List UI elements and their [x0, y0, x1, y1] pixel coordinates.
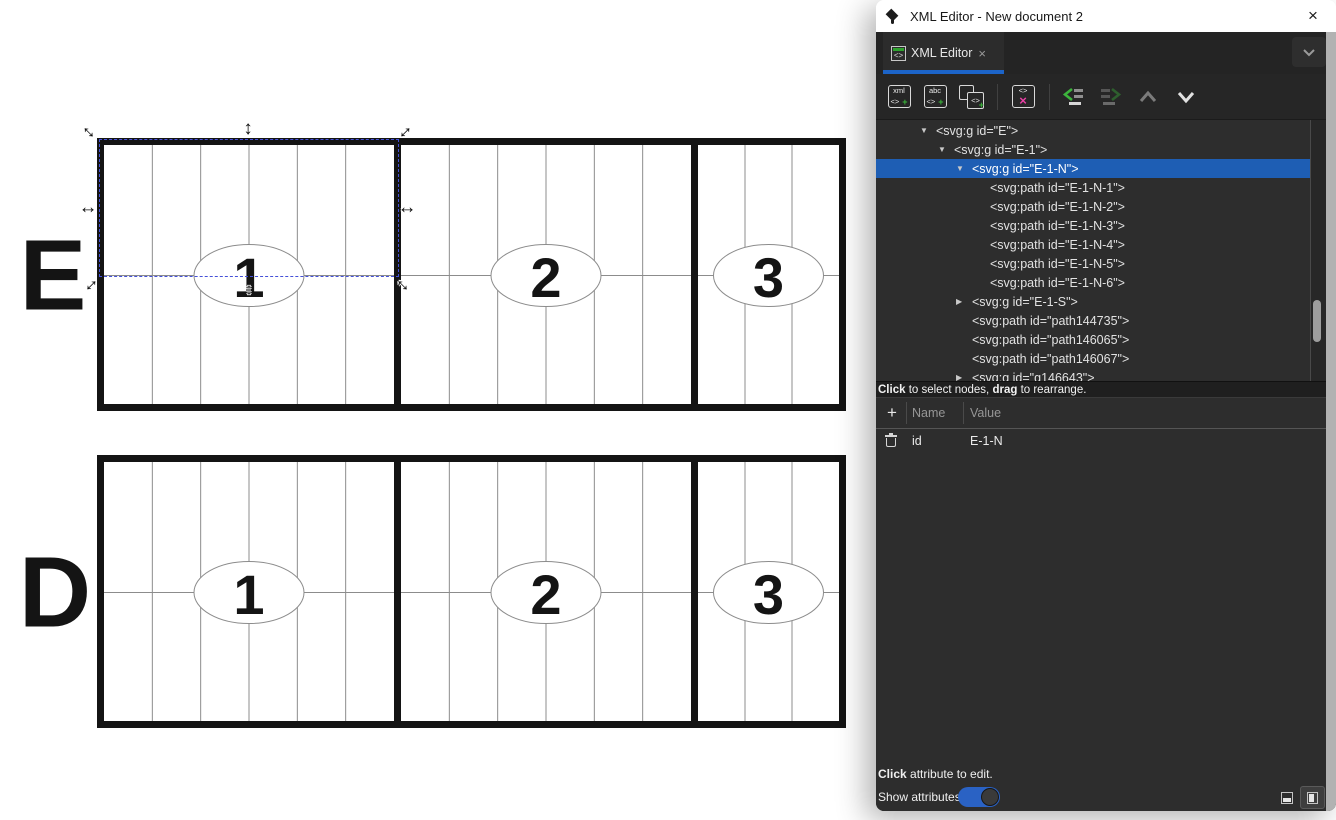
section-number[interactable]: 2 — [530, 563, 561, 626]
attributes-header: + Name Value — [876, 397, 1326, 429]
inkscape-logo-icon — [884, 8, 900, 24]
attribute-hint: Click attribute to edit. — [878, 767, 993, 781]
xml-editor-dialog: XML Editor - New document 2 × <> XML Edi… — [876, 0, 1336, 811]
icon-text: abc — [927, 87, 944, 95]
tree-node-label: <svg:path id="E-1-N-3"> — [990, 219, 1125, 233]
tree-node-label: <svg:g id="g146643"> — [972, 371, 1095, 382]
tree-node[interactable]: ▼<svg:g id="E-1"> — [876, 140, 1310, 159]
selection-handle-n[interactable]: ↕ — [237, 118, 259, 140]
value-column-header: Value — [970, 398, 1001, 428]
tree-node[interactable]: <svg:path id="E-1-N-6"> — [876, 273, 1310, 292]
attribute-row[interactable]: id E-1-N — [876, 429, 1326, 453]
expander-icon[interactable]: ▼ — [938, 145, 954, 154]
horizontal-split-icon — [1281, 792, 1293, 804]
tab-xml-editor[interactable]: <> XML Editor × — [883, 32, 1004, 74]
plus-glyph: + — [902, 99, 907, 106]
delete-node-button[interactable]: <> × — [1008, 80, 1038, 114]
tree-node-label: <svg:path id="path144735"> — [972, 314, 1129, 328]
chevron-down-icon — [1302, 48, 1316, 57]
tree-node[interactable]: ▼<svg:g id="E"> — [876, 121, 1310, 140]
layout-horizontal-button[interactable] — [1275, 787, 1299, 809]
attribute-value[interactable]: E-1-N — [970, 429, 1003, 453]
show-attributes-label: Show attributes — [878, 787, 961, 807]
tab-menu-button[interactable] — [1292, 37, 1326, 67]
row-label: D — [19, 537, 91, 649]
icon-text: xml — [891, 87, 908, 95]
tree-node-label: <svg:path id="E-1-N-2"> — [990, 200, 1125, 214]
tree-node[interactable]: <svg:path id="E-1-N-1"> — [876, 178, 1310, 197]
toggle-knob — [981, 788, 999, 806]
unindent-node-button[interactable] — [1059, 80, 1089, 114]
duplicate-node-button[interactable]: <>+ — [956, 80, 986, 114]
new-element-node-icon: xml <>+ — [888, 85, 911, 108]
window-title: XML Editor - New document 2 — [910, 9, 1083, 24]
chevron-down-icon — [1175, 88, 1197, 106]
delete-node-icon: <> × — [1012, 85, 1035, 108]
tree-node[interactable]: <svg:path id="E-1-N-5"> — [876, 254, 1310, 273]
row-label: E — [20, 220, 87, 332]
tree-node-label: <svg:path id="E-1-N-4"> — [990, 238, 1125, 252]
tree-node-label: <svg:path id="path146067"> — [972, 352, 1129, 366]
tree-scrollbar[interactable] — [1311, 120, 1326, 381]
plus-glyph: + — [979, 100, 984, 110]
xml-tag-icon: <> — [891, 46, 906, 61]
tree-node-label: <svg:path id="E-1-N-1"> — [990, 181, 1125, 195]
tree-node[interactable]: ▶<svg:g id="g146643"> — [876, 368, 1310, 381]
indent-node-button[interactable] — [1095, 80, 1125, 114]
plus-glyph: + — [938, 99, 943, 106]
chevron-up-icon — [1137, 88, 1159, 106]
tree-node[interactable]: <svg:path id="path144735"> — [876, 311, 1310, 330]
icon-text: <> — [891, 98, 900, 106]
indent-node-icon — [1097, 87, 1123, 107]
status-text: to select nodes, — [906, 384, 993, 396]
expander-icon[interactable]: ▼ — [956, 164, 972, 173]
status-text: Click — [878, 384, 906, 396]
tree-node[interactable]: <svg:path id="path146065"> — [876, 330, 1310, 349]
status-text: drag — [992, 384, 1017, 396]
toolbar-separator — [1049, 84, 1050, 110]
tree-node[interactable]: <svg:path id="E-1-N-3"> — [876, 216, 1310, 235]
toolbar-separator — [997, 84, 998, 110]
expander-icon[interactable]: ▶ — [956, 297, 972, 306]
delete-attribute-icon[interactable] — [885, 434, 897, 448]
drawing-svg[interactable]: E123D123 — [0, 0, 876, 820]
xml-node-tree: ▼<svg:g id="E">▼<svg:g id="E-1">▼<svg:g … — [876, 119, 1326, 381]
tree-node-label: <svg:g id="E-1-S"> — [972, 295, 1078, 309]
tree-node[interactable]: <svg:path id="E-1-N-4"> — [876, 235, 1310, 254]
dialog-client-area: <> XML Editor × xml <>+ abc — [876, 32, 1336, 811]
icon-front-square: <>+ — [967, 92, 984, 109]
layout-vertical-button[interactable] — [1300, 786, 1325, 809]
expander-icon[interactable]: ▼ — [920, 126, 936, 135]
expander-icon[interactable]: ▶ — [956, 373, 972, 381]
new-text-node-icon: abc <>+ — [924, 85, 947, 108]
status-text: to rearrange. — [1017, 384, 1086, 396]
new-text-node-button[interactable]: abc <>+ — [920, 80, 950, 114]
selection-handle-s[interactable]: ↕ — [238, 278, 260, 300]
hint-text: Click — [878, 767, 907, 781]
tree-node-label: <svg:g id="E"> — [936, 124, 1018, 138]
attribute-name[interactable]: id — [912, 429, 922, 453]
trash-body — [886, 438, 896, 447]
selection-handle-w[interactable]: ↔ — [77, 197, 99, 219]
icon-text: <> — [927, 98, 936, 106]
duplicate-node-icon: <>+ — [958, 84, 984, 109]
section-number[interactable]: 2 — [530, 246, 561, 309]
tree-node[interactable]: <svg:path id="path146067"> — [876, 349, 1310, 368]
tab-label: XML Editor — [911, 46, 972, 60]
move-node-down-button[interactable] — [1171, 80, 1201, 114]
trash-lid — [885, 435, 897, 437]
tree-node-label: <svg:g id="E-1-N"> — [972, 162, 1079, 176]
new-element-node-button[interactable]: xml <>+ — [884, 80, 914, 114]
hint-text: attribute to edit. — [907, 767, 993, 781]
tab-close-icon[interactable]: × — [978, 46, 986, 61]
tree-node-label: <svg:g id="E-1"> — [954, 143, 1047, 157]
section-number[interactable]: 1 — [233, 563, 264, 626]
name-column-header: Name — [912, 398, 945, 428]
attributes-empty-area — [876, 453, 1326, 811]
show-attributes-toggle[interactable] — [958, 787, 1000, 807]
window-edge-gutter — [1326, 32, 1336, 811]
section-number[interactable]: 3 — [753, 246, 784, 309]
vertical-split-icon — [1307, 792, 1318, 804]
tree-node[interactable]: <svg:path id="E-1-N-2"> — [876, 197, 1310, 216]
section-number[interactable]: 3 — [753, 563, 784, 626]
unindent-node-icon — [1061, 87, 1087, 107]
tree-node[interactable]: ▶<svg:g id="E-1-S"> — [876, 292, 1310, 311]
tree-node-label: <svg:path id="E-1-N-5"> — [990, 257, 1125, 271]
tree-status-bar: Click to select nodes, drag to rearrange… — [876, 381, 1326, 397]
selection-handle-e[interactable]: ↔ — [396, 197, 418, 219]
delete-x-glyph: × — [1019, 95, 1027, 107]
dialog-titlebar[interactable]: XML Editor - New document 2 × — [876, 0, 1336, 32]
header-divider — [963, 402, 964, 424]
scrollbar-thumb[interactable] — [1313, 300, 1321, 342]
tree-node-label: <svg:path id="E-1-N-6"> — [990, 276, 1125, 290]
move-node-up-button[interactable] — [1133, 80, 1163, 114]
tab-bar: <> XML Editor × — [876, 32, 1326, 74]
tree-rows: ▼<svg:g id="E">▼<svg:g id="E-1">▼<svg:g … — [876, 121, 1310, 381]
xml-toolbar: xml <>+ abc <>+ <>+ <> × — [876, 74, 1326, 119]
tree-node-label: <svg:path id="path146065"> — [972, 333, 1129, 347]
header-divider — [906, 402, 907, 424]
tree-node[interactable]: ▼<svg:g id="E-1-N"> — [876, 159, 1310, 178]
add-attribute-button[interactable]: + — [879, 401, 905, 425]
window-close-button[interactable]: × — [1300, 3, 1326, 29]
